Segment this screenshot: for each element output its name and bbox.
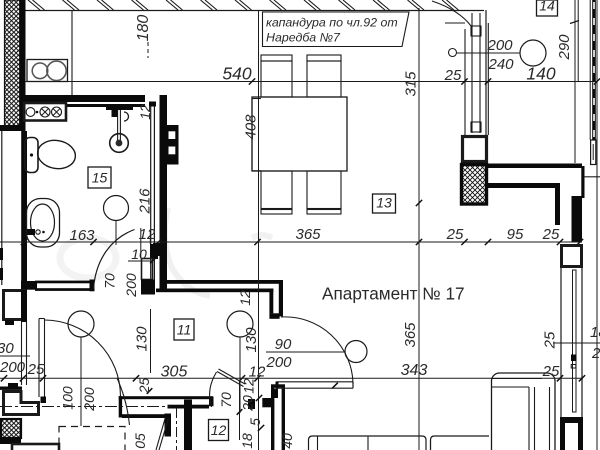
svg-text:30: 30 <box>0 340 14 357</box>
svg-text:25: 25 <box>136 378 152 395</box>
svg-text:13: 13 <box>376 195 392 211</box>
svg-text:20: 20 <box>240 395 256 412</box>
svg-text:90: 90 <box>275 336 292 353</box>
svg-text:капандура по чл.92 от: капандура по чл.92 от <box>266 16 398 30</box>
svg-text:12: 12 <box>139 226 156 243</box>
svg-text:Наредба №7: Наредба №7 <box>266 31 341 45</box>
svg-text:25: 25 <box>444 67 462 84</box>
svg-text:163: 163 <box>69 227 95 244</box>
svg-text:70: 70 <box>218 392 234 408</box>
svg-text:130: 130 <box>243 327 260 353</box>
svg-text:540: 540 <box>222 64 251 84</box>
svg-text:11: 11 <box>177 322 192 338</box>
svg-text:14: 14 <box>539 0 555 14</box>
svg-text:25: 25 <box>446 226 464 243</box>
svg-text:140: 140 <box>526 64 555 84</box>
svg-text:315: 315 <box>403 71 420 97</box>
svg-text:216: 216 <box>137 188 154 215</box>
svg-text:200: 200 <box>265 354 292 371</box>
svg-text:15: 15 <box>92 170 108 186</box>
svg-text:365: 365 <box>295 226 321 243</box>
svg-text:365: 365 <box>402 322 419 348</box>
svg-text:240: 240 <box>487 56 514 73</box>
svg-text:12: 12 <box>137 104 153 120</box>
svg-text:24: 24 <box>591 345 600 362</box>
svg-text:200: 200 <box>486 37 513 54</box>
svg-text:40: 40 <box>279 433 295 449</box>
svg-text:Апартамент № 17: Апартамент № 17 <box>322 284 465 304</box>
svg-text:05: 05 <box>132 433 148 449</box>
svg-text:290: 290 <box>556 34 573 61</box>
svg-text:200: 200 <box>123 273 139 298</box>
svg-text:200: 200 <box>0 359 26 376</box>
svg-text:70: 70 <box>102 273 118 289</box>
svg-text:25: 25 <box>542 226 560 243</box>
svg-text:18: 18 <box>590 324 600 341</box>
svg-text:305: 305 <box>161 364 188 381</box>
svg-text:12: 12 <box>241 378 257 394</box>
svg-text:130: 130 <box>134 326 151 352</box>
svg-text:95: 95 <box>507 226 524 243</box>
svg-text:343: 343 <box>401 362 428 379</box>
svg-text:25: 25 <box>542 331 559 349</box>
svg-text:25: 25 <box>542 363 560 380</box>
svg-text:100: 100 <box>60 386 76 410</box>
svg-text:408: 408 <box>243 114 260 140</box>
svg-text:180: 180 <box>135 15 152 42</box>
svg-text:25: 25 <box>27 361 45 378</box>
svg-text:12: 12 <box>249 364 266 381</box>
svg-text:12: 12 <box>237 290 253 306</box>
svg-text:5: 5 <box>247 418 263 426</box>
svg-text:12: 12 <box>211 422 227 438</box>
svg-text:200: 200 <box>81 387 97 412</box>
svg-text:18: 18 <box>239 433 255 449</box>
svg-text:10: 10 <box>131 246 147 262</box>
